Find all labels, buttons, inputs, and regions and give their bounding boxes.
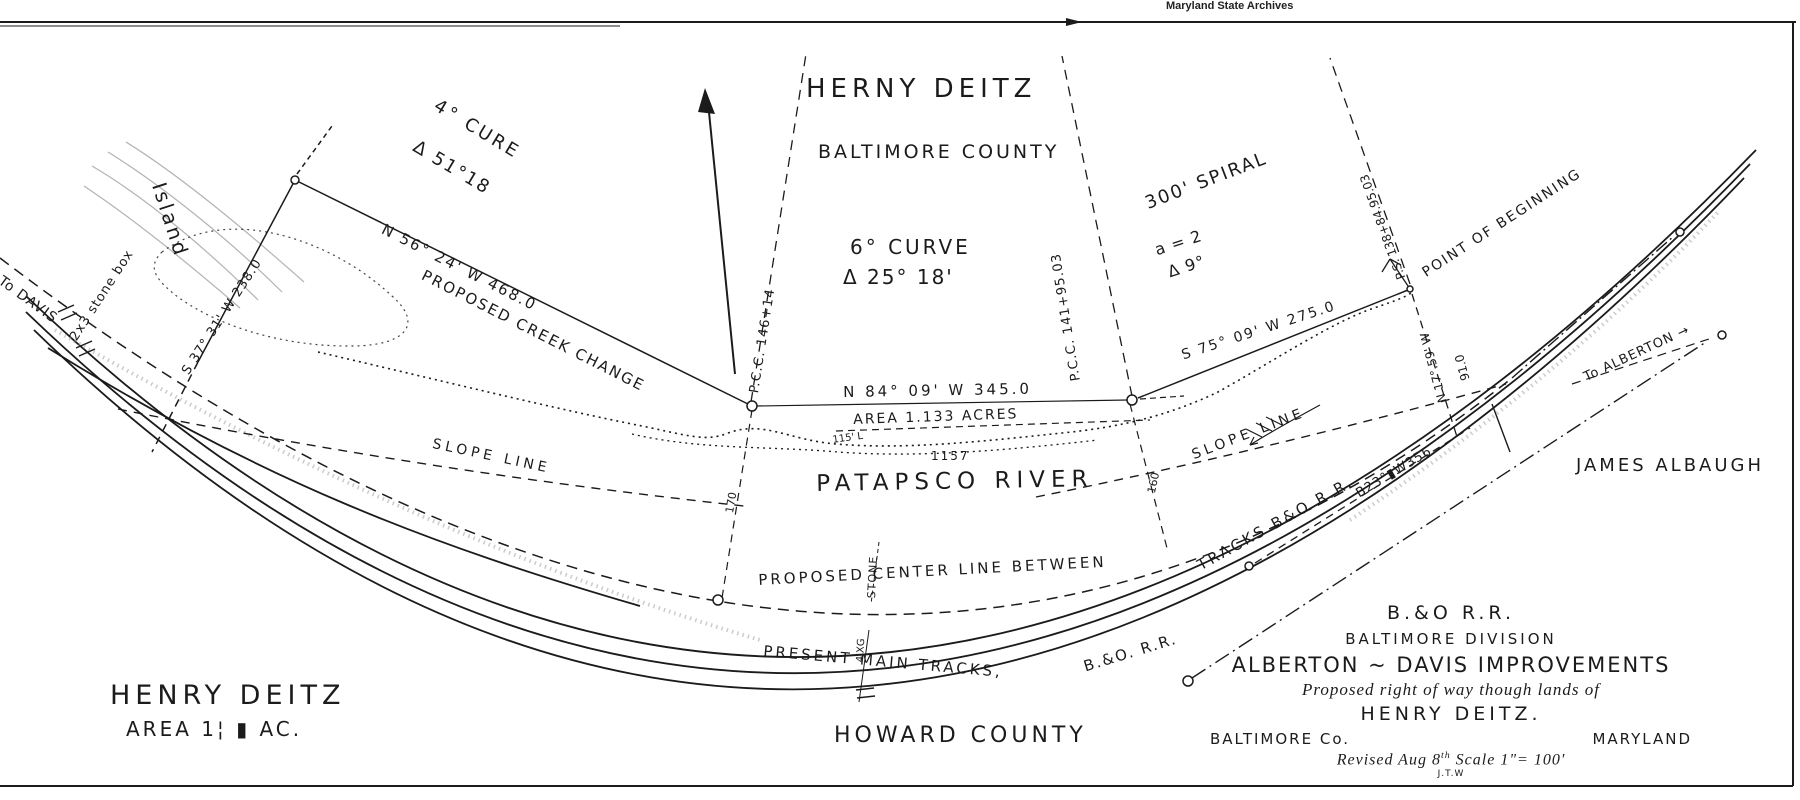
label-stone: STONE (866, 556, 880, 599)
label-henry-deitz-area: AREA 1¦ ▮ AC. (126, 719, 302, 740)
title-railroad: B.&O R.R. (1168, 602, 1734, 624)
label-patapsco-river: PATAPSCO RIVER (816, 467, 1094, 496)
title-division: BALTIMORE DIVISION (1168, 630, 1734, 648)
label-num-1157: 1157 (931, 450, 970, 463)
label-bearing-n84: N 84° 09' W 345.0 (843, 382, 1032, 401)
title-revision-scale: Revised Aug 8th Scale 1"= 100' (1168, 750, 1734, 769)
north-arrow (698, 88, 735, 374)
label-henry-deitz: HENRY DEITZ (110, 682, 345, 710)
title-state: MARYLAND (1592, 730, 1692, 748)
label-baltimore-county: BALTIMORE COUNTY (818, 143, 1059, 163)
title-initials: J.T.W (1168, 769, 1734, 779)
title-county: BALTIMORE Co. (1210, 730, 1350, 748)
archive-header: Maryland State Archives (1166, 1, 1293, 13)
label-howard-county: HOWARD COUNTY (834, 724, 1087, 747)
label-6deg-curve-delta: Δ 25° 18' (843, 267, 954, 288)
title-right-of-way: Proposed right of way though lands of (1168, 680, 1734, 700)
slope-lines (118, 384, 1506, 506)
top-line-arrow-icon (1066, 18, 1082, 26)
label-james-albaugh: JAMES ALBAUGH (1576, 457, 1764, 476)
title-improvements: ALBERTON ~ DAVIS IMPROVEMENTS (1168, 653, 1734, 677)
title-block: B.&O R.R. BALTIMORE DIVISION ALBERTON ~ … (1168, 602, 1734, 779)
label-herny-deitz: HERNY DEITZ (806, 76, 1036, 103)
survey-plat-page: Maryland State Archives HERNY DEITZ BALT… (0, 0, 1800, 800)
island-outline-dotted (154, 229, 408, 346)
label-6deg-curve: 6° CURVE (850, 237, 971, 258)
title-owner: HENRY DEITZ. (1168, 703, 1734, 725)
